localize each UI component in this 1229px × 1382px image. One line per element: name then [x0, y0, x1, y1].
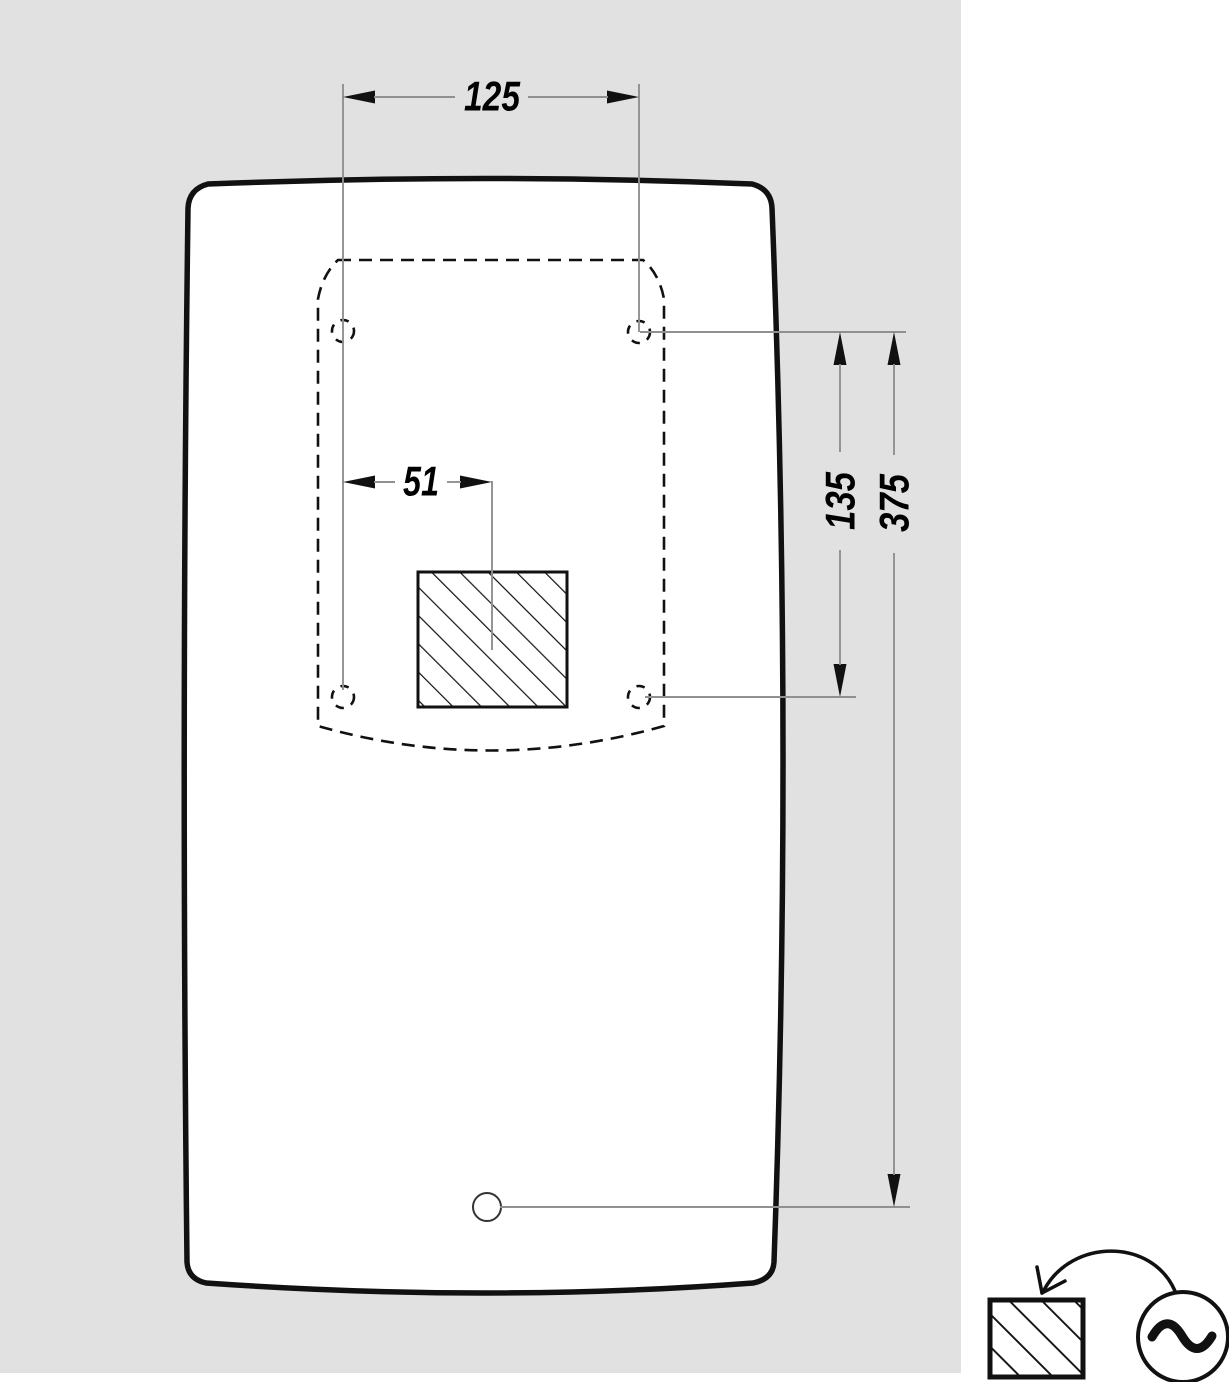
- mounting-template-drawing: 125 51 135 375: [0, 0, 1229, 1382]
- device-outline: [184, 179, 783, 1294]
- dimension-125-label: 125: [464, 73, 521, 120]
- dimension-135-label: 135: [817, 471, 864, 530]
- dimension-375-label: 375: [871, 473, 918, 532]
- hatched-area-icon: [990, 1300, 1083, 1377]
- installation-drawing-page: 125 51 135 375: [0, 0, 1229, 1382]
- dimension-51-label: 51: [403, 458, 439, 505]
